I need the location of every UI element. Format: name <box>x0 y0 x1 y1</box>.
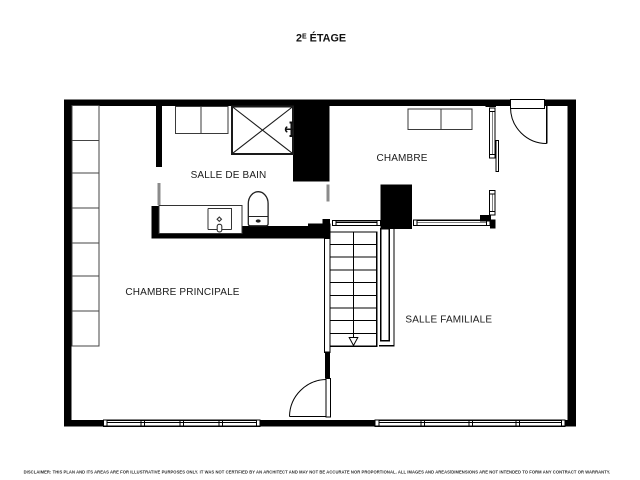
svg-text:SALLE DE BAIN: SALLE DE BAIN <box>191 170 267 181</box>
svg-text:CHAMBRE: CHAMBRE <box>376 153 427 164</box>
svg-text:CHAMBRE PRINCIPALE: CHAMBRE PRINCIPALE <box>125 287 239 298</box>
svg-text:DISCLAIMER: THIS PLAN AND ITS: DISCLAIMER: THIS PLAN AND ITS AREAS ARE … <box>24 470 611 475</box>
svg-text:SALLE FAMILIALE: SALLE FAMILIALE <box>405 315 492 326</box>
